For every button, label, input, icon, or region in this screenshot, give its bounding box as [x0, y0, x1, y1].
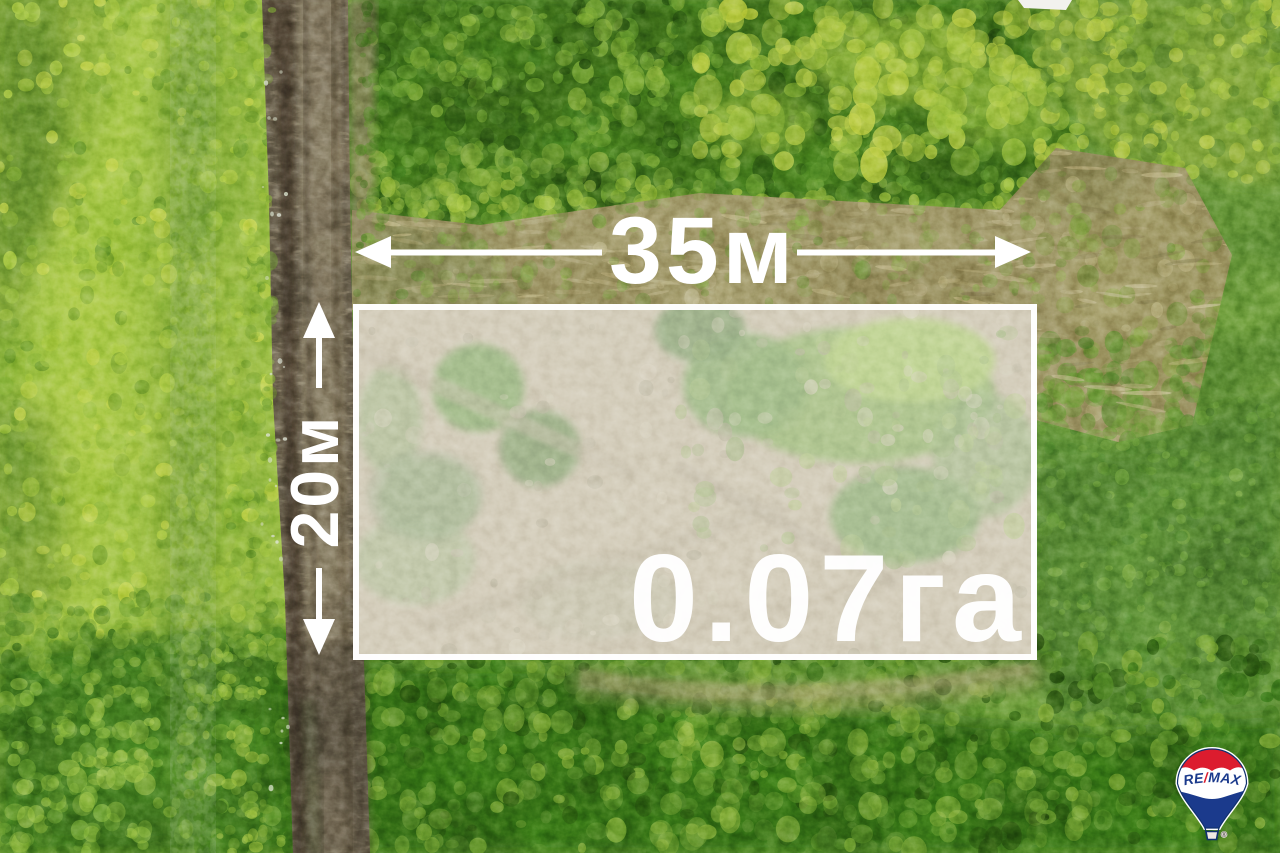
svg-text:35м: 35м: [609, 198, 797, 304]
svg-text:20м: 20м: [277, 414, 353, 549]
svg-text:®: ®: [1221, 831, 1227, 839]
svg-text:0.07га: 0.07га: [629, 530, 1027, 668]
